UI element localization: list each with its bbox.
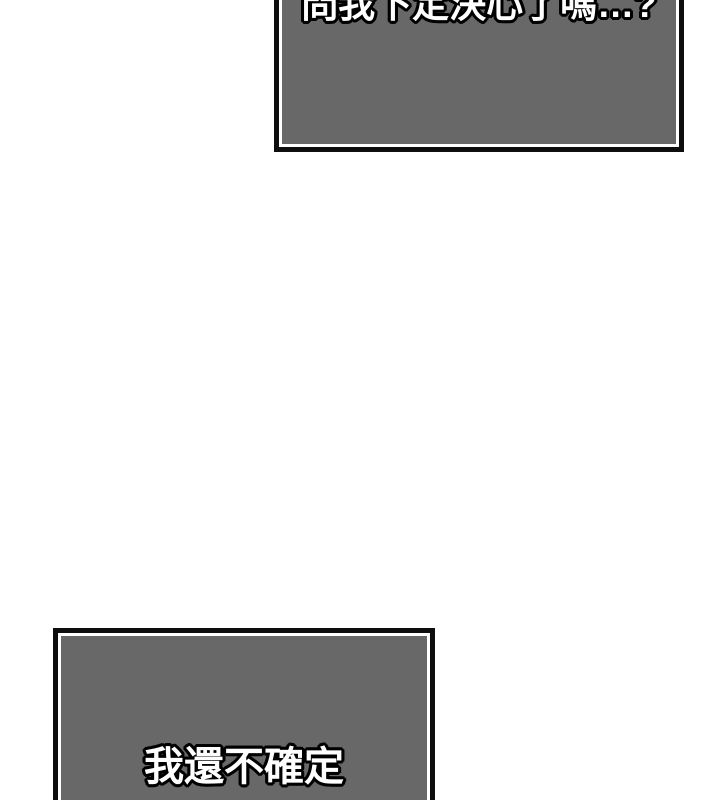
caption-box-bottom: 我還不確定 [53, 628, 435, 800]
caption-text-bottom: 我還不確定 [58, 746, 430, 788]
caption-text-top: 問我下定決心了嗎…? [279, 0, 679, 25]
comic-page: 問我下定決心了嗎…? 我還不確定 [0, 0, 720, 800]
caption-box-top: 問我下定決心了嗎…? [274, 0, 684, 152]
